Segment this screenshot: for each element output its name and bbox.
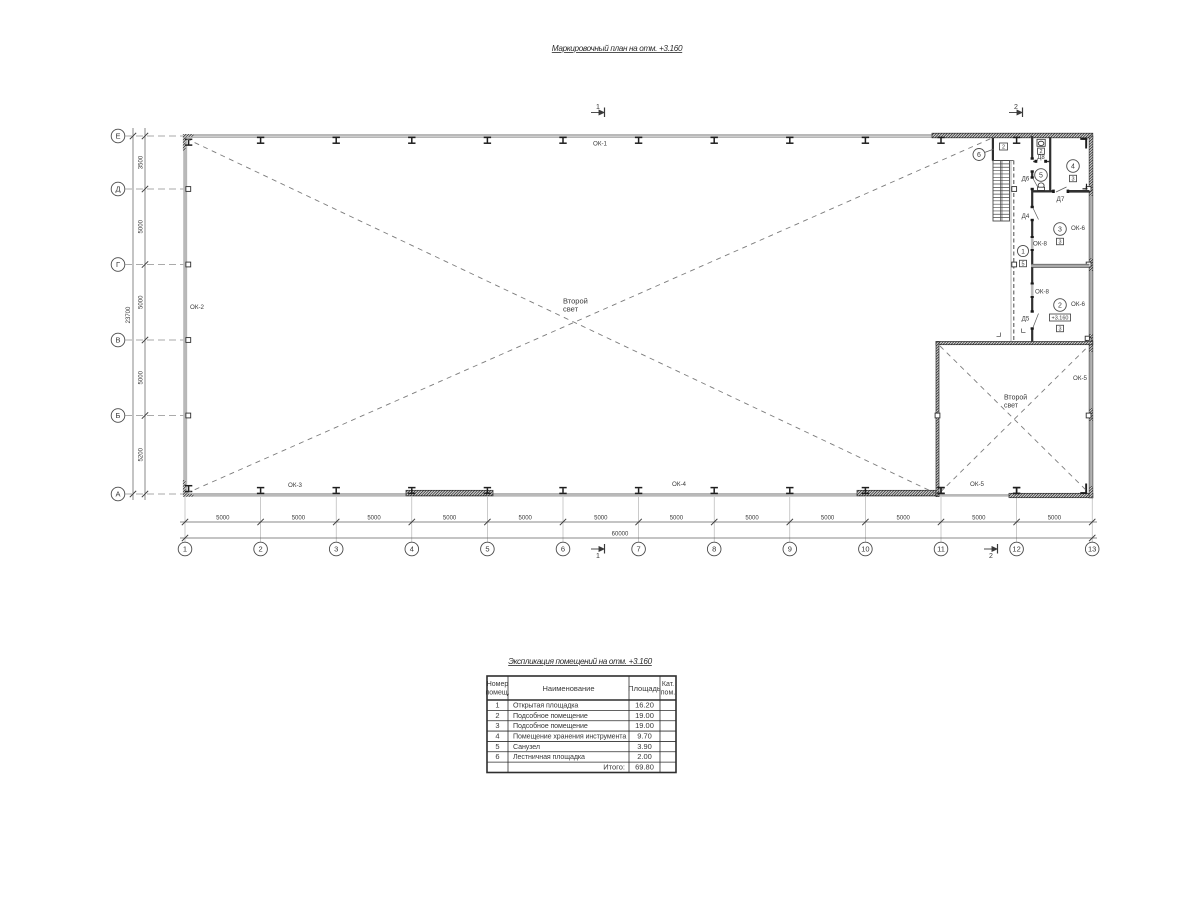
svg-text:ОК-3: ОК-3 — [288, 482, 302, 489]
svg-text:Е: Е — [115, 132, 120, 141]
svg-text:2: 2 — [1014, 104, 1018, 111]
svg-text:Кат.: Кат. — [662, 681, 674, 688]
svg-text:9.70: 9.70 — [637, 732, 652, 741]
svg-text:Д7: Д7 — [1057, 196, 1065, 203]
svg-text:Площадь: Площадь — [628, 684, 661, 693]
svg-text:9: 9 — [788, 545, 792, 554]
svg-text:ОК-8: ОК-8 — [1033, 241, 1047, 248]
svg-text:ОК-6: ОК-6 — [1071, 225, 1085, 232]
svg-text:5000: 5000 — [139, 370, 145, 384]
svg-text:Лестничная площадка: Лестничная площадка — [513, 753, 585, 761]
svg-text:А: А — [115, 490, 120, 499]
svg-text:ОК-8: ОК-8 — [1035, 289, 1049, 296]
svg-text:19.00: 19.00 — [635, 721, 654, 730]
svg-text:1: 1 — [596, 553, 600, 560]
svg-text:Подсобное помещение: Подсобное помещение — [513, 712, 588, 720]
svg-text:Д6: Д6 — [1022, 176, 1030, 183]
svg-text:12: 12 — [1012, 545, 1020, 554]
svg-text:2: 2 — [989, 553, 993, 560]
svg-text:7: 7 — [637, 545, 641, 554]
svg-text:5000: 5000 — [519, 516, 533, 522]
svg-text:5000: 5000 — [367, 516, 381, 522]
svg-text:10: 10 — [861, 545, 869, 554]
svg-text:2: 2 — [1058, 302, 1062, 309]
svg-text:1: 1 — [495, 700, 499, 709]
svg-text:5: 5 — [485, 545, 489, 554]
svg-text:Помещение хранения инструмента: Помещение хранения инструмента — [513, 733, 626, 741]
svg-text:19.00: 19.00 — [635, 711, 654, 720]
svg-text:Открытая площадка: Открытая площадка — [513, 701, 578, 709]
svg-text:5000: 5000 — [139, 219, 145, 233]
svg-text:Второй: Второй — [1004, 394, 1027, 402]
svg-text:ОК-4: ОК-4 — [672, 481, 686, 488]
svg-text:Наименование: Наименование — [543, 684, 595, 693]
svg-text:13: 13 — [1088, 545, 1096, 554]
svg-text:4: 4 — [495, 732, 499, 741]
svg-text:5: 5 — [1021, 262, 1024, 268]
svg-text:Г: Г — [116, 260, 120, 269]
svg-text:Экспликация помещений на отм.: Экспликация помещений на отм. +3.160 — [508, 657, 652, 666]
svg-text:5000: 5000 — [821, 516, 835, 522]
svg-text:свет: свет — [1004, 403, 1019, 410]
svg-text:5000: 5000 — [292, 516, 306, 522]
svg-text:5200: 5200 — [139, 447, 145, 461]
svg-text:5000: 5000 — [594, 516, 608, 522]
svg-text:3: 3 — [1058, 240, 1061, 246]
svg-text:5: 5 — [495, 742, 499, 751]
svg-text:16.20: 16.20 — [635, 700, 654, 709]
svg-text:Д5: Д5 — [1022, 316, 1030, 323]
svg-text:пом.: пом. — [661, 690, 675, 697]
svg-text:1: 1 — [1021, 248, 1025, 255]
svg-text:11: 11 — [937, 545, 945, 554]
svg-text:Подсобное помещение: Подсобное помещение — [513, 722, 588, 730]
svg-text:ОК-5: ОК-5 — [970, 481, 984, 488]
svg-text:23700: 23700 — [126, 306, 132, 323]
svg-text:2: 2 — [1002, 145, 1005, 151]
svg-text:6: 6 — [495, 752, 499, 761]
svg-text:5000: 5000 — [443, 516, 457, 522]
svg-text:помещ.: помещ. — [485, 690, 509, 697]
svg-text:Номер: Номер — [487, 681, 509, 688]
svg-text:2: 2 — [495, 711, 499, 720]
svg-text:Санузел: Санузел — [513, 743, 540, 751]
svg-text:3500: 3500 — [139, 155, 145, 169]
svg-text:3: 3 — [1071, 177, 1074, 183]
svg-text:2: 2 — [259, 545, 263, 554]
svg-text:Д8: Д8 — [1037, 155, 1045, 161]
svg-text:ОК-1: ОК-1 — [593, 141, 607, 148]
svg-text:4: 4 — [1071, 163, 1075, 170]
svg-text:свет: свет — [563, 305, 579, 314]
svg-text:3: 3 — [1058, 226, 1062, 233]
svg-text:5000: 5000 — [972, 516, 986, 522]
svg-text:ОК-6: ОК-6 — [1071, 301, 1085, 308]
svg-text:Итого:: Итого: — [603, 763, 625, 772]
svg-text:5000: 5000 — [745, 516, 759, 522]
svg-text:Б: Б — [116, 411, 121, 420]
svg-text:2.00: 2.00 — [637, 752, 652, 761]
svg-text:60000: 60000 — [612, 532, 629, 538]
svg-text:3: 3 — [1058, 327, 1061, 333]
svg-text:ОК-2: ОК-2 — [190, 304, 204, 311]
svg-text:5000: 5000 — [216, 516, 230, 522]
svg-text:69.80: 69.80 — [635, 763, 654, 772]
svg-text:5000: 5000 — [139, 295, 145, 309]
svg-text:5000: 5000 — [1048, 516, 1062, 522]
svg-text:6: 6 — [977, 152, 981, 159]
svg-text:Д4: Д4 — [1022, 213, 1030, 220]
svg-text:+3.160: +3.160 — [1052, 316, 1069, 322]
svg-text:6: 6 — [561, 545, 565, 554]
svg-text:3.90: 3.90 — [637, 742, 652, 751]
svg-text:В: В — [115, 336, 120, 345]
svg-text:5000: 5000 — [897, 516, 911, 522]
svg-text:4: 4 — [410, 545, 414, 554]
svg-text:3: 3 — [495, 721, 499, 730]
svg-text:8: 8 — [712, 545, 716, 554]
svg-text:ОК-5: ОК-5 — [1073, 375, 1087, 382]
svg-text:1: 1 — [596, 104, 600, 111]
svg-text:3: 3 — [334, 545, 338, 554]
svg-text:Маркировочный план на отм. +3.: Маркировочный план на отм. +3.160 — [552, 44, 683, 53]
svg-text:Д: Д — [115, 185, 120, 194]
svg-text:5000: 5000 — [670, 516, 684, 522]
svg-text:5: 5 — [1039, 172, 1043, 179]
svg-text:1: 1 — [183, 545, 187, 554]
